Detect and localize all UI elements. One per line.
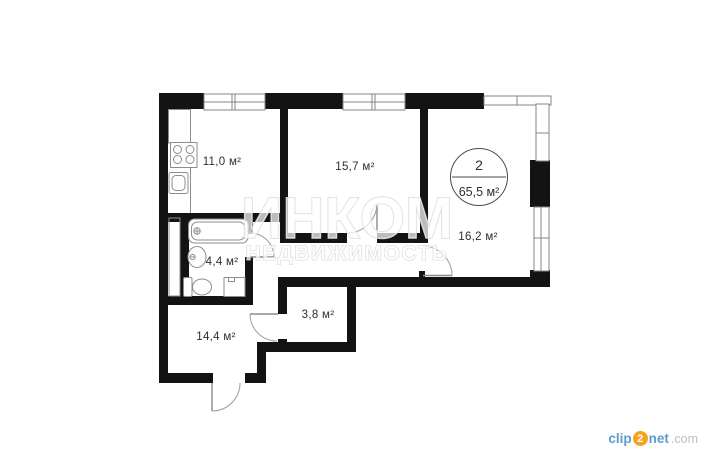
wall bbox=[278, 277, 287, 314]
toilet-icon bbox=[184, 278, 212, 297]
wall bbox=[159, 373, 213, 383]
living-room-area-label: 15,7 м² bbox=[335, 161, 374, 173]
window-symbol bbox=[204, 94, 265, 110]
wall bbox=[530, 160, 550, 207]
wall bbox=[245, 373, 266, 383]
total-area-badge: 2 65,5 м² bbox=[451, 149, 508, 206]
wash-basin-icon bbox=[188, 247, 206, 268]
bathroom-shaft bbox=[169, 218, 180, 296]
ventilation-shaft-icon bbox=[169, 110, 191, 144]
fixtures bbox=[169, 110, 249, 297]
inkom-watermark: ИНКОМ НЕДВИЖИМОСТЬ bbox=[241, 186, 453, 265]
clip2net-clip: clip bbox=[608, 431, 631, 446]
clip2net-com: .com bbox=[671, 432, 698, 446]
screenshot-canvas: { "page": {"background": "#ffffff"}, "fl… bbox=[0, 0, 701, 450]
washing-machine-icon bbox=[224, 278, 245, 297]
floor-plan: 11,0 м² 15,7 м² 16,2 м² 4,4 м² 3,8 м² 14… bbox=[0, 0, 701, 450]
wall bbox=[257, 342, 356, 352]
total-area-value: 65,5 м² bbox=[459, 185, 500, 199]
window-symbol bbox=[534, 207, 549, 271]
wall bbox=[265, 93, 343, 109]
door-jamb bbox=[419, 271, 425, 278]
kitchen-sink-icon bbox=[169, 173, 188, 194]
watermark-subtitle: НЕДВИЖИМОСТЬ bbox=[246, 242, 449, 265]
window-symbol bbox=[343, 94, 405, 110]
wall bbox=[278, 277, 550, 287]
kitchen-area-label: 11,0 м² bbox=[203, 156, 242, 168]
wall bbox=[405, 93, 484, 109]
stove-icon bbox=[171, 143, 198, 168]
entrance-door bbox=[212, 383, 240, 411]
corner-window-symbol bbox=[484, 96, 551, 161]
bathtub-icon bbox=[189, 219, 249, 243]
wall bbox=[159, 93, 168, 383]
clip2net-logo: clip2net.com bbox=[608, 431, 698, 446]
bathroom-area-label: 4,4 м² bbox=[206, 256, 239, 268]
clip2net-two-icon: 2 bbox=[633, 431, 648, 446]
clip2net-net: net bbox=[649, 431, 669, 446]
storage-door bbox=[250, 314, 278, 341]
hallway-area-label: 14,4 м² bbox=[196, 331, 235, 343]
wall bbox=[347, 277, 356, 352]
wall bbox=[530, 270, 550, 287]
bedroom-area-label: 16,2 м² bbox=[458, 231, 497, 243]
room-count: 2 bbox=[475, 157, 483, 173]
wall bbox=[159, 296, 253, 305]
storage-area-label: 3,8 м² bbox=[302, 309, 335, 321]
